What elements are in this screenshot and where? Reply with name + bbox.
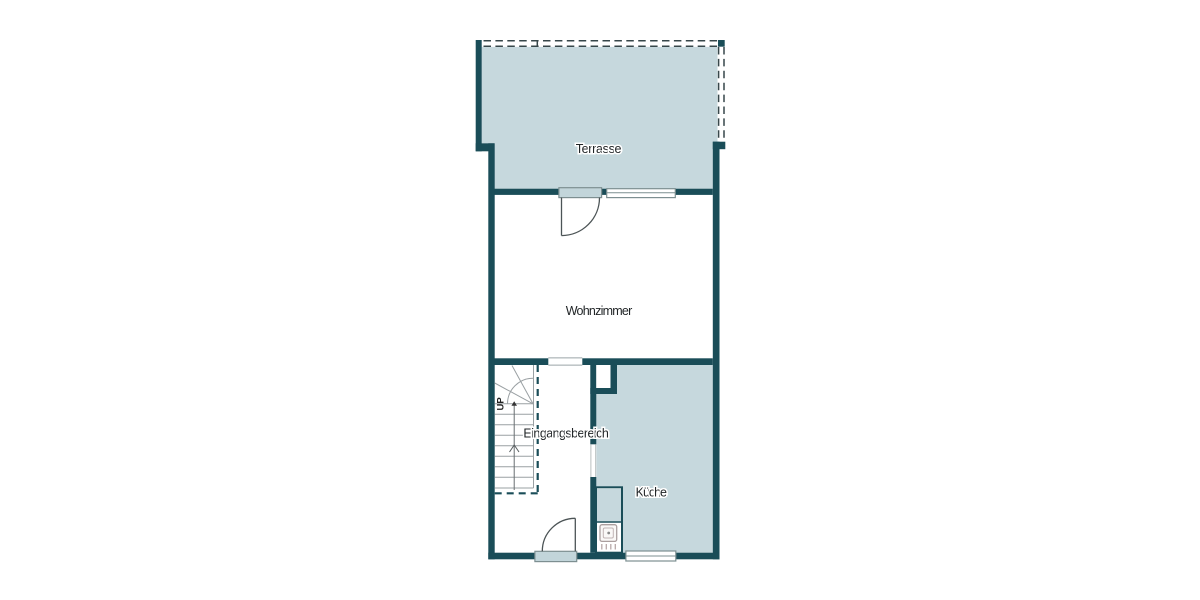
svg-text:Küche: Küche xyxy=(636,485,667,499)
svg-text:Eingangsbereich: Eingangsbereich xyxy=(523,426,608,440)
svg-text:Terrasse: Terrasse xyxy=(576,142,622,156)
svg-text:Wohnzimmer: Wohnzimmer xyxy=(566,304,633,318)
svg-text:UP: UP xyxy=(496,397,507,411)
